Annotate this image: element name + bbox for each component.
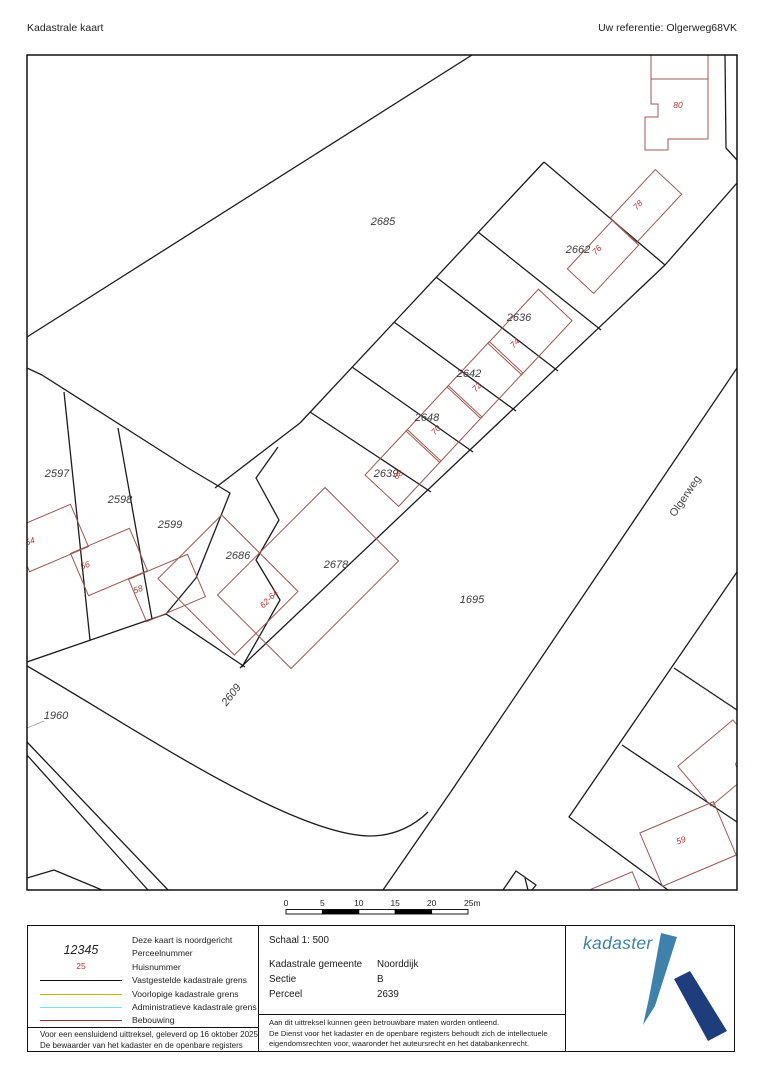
house-number-61: 61 <box>732 757 746 771</box>
building-outline-78 <box>610 170 681 243</box>
scalebar-segment <box>359 910 395 915</box>
legend-symbol-text: 12345 <box>40 943 122 957</box>
legend-line-symbol <box>40 994 122 995</box>
legend-label: Huisnummer <box>132 962 181 972</box>
detail-value: Noorddijk <box>377 959 418 970</box>
street-label-Olgerweg: Olgerweg <box>667 473 703 519</box>
scalebar: 0510152025m <box>284 898 481 914</box>
legend-separator <box>28 1027 258 1028</box>
legend-line-symbol <box>40 1020 122 1021</box>
details-section: Schaal 1: 500 Kadastrale gemeenteNoorddi… <box>258 926 565 1051</box>
parcel-boundary <box>394 322 516 411</box>
building-outline-61 <box>678 720 763 806</box>
building-outline-59 <box>640 802 736 887</box>
scale-label: Schaal 1: 500 <box>269 935 329 946</box>
parcel-label-2678: 2678 <box>323 559 349 571</box>
parcel-boundary <box>215 423 300 488</box>
scalebar-segment <box>432 910 468 915</box>
parcel-boundary <box>27 368 230 662</box>
scalebar-segment <box>322 910 358 915</box>
building-outline-74 <box>488 289 572 374</box>
kadaster-logo-text: kadaster <box>583 933 653 954</box>
parcel-boundary <box>725 55 737 160</box>
detail-label: Kadastrale gemeente <box>269 959 362 970</box>
legend-row: Vastgestelde kadastrale grens <box>28 974 258 988</box>
legend-row: Administratieve kadastrale grens <box>28 1001 258 1015</box>
scalebar-label-25m: 25m <box>464 898 481 908</box>
house-number-78: 78 <box>631 198 645 212</box>
parcel-boundary <box>27 742 168 890</box>
certification-note: Voor een eensluidend uittreksel, gelever… <box>40 1030 258 1039</box>
legend-row: 25Huisnummer <box>28 961 258 975</box>
house-number-76: 76 <box>590 243 604 257</box>
parcel-boundary <box>27 721 44 728</box>
parcel-label-2648: 2648 <box>414 412 440 424</box>
house-number-80: 80 <box>673 100 683 110</box>
building-outline-76 <box>567 221 638 294</box>
house-number-70: 70 <box>429 423 443 437</box>
house-number-72: 72 <box>470 380 484 394</box>
logo-section: kadaster <box>565 926 734 1051</box>
house-number-56: 56 <box>79 559 92 572</box>
parcel-boundary <box>27 55 472 337</box>
logo-bar-shape <box>674 971 727 1041</box>
disclaimer-line: Aan dit uittreksel kunnen geen betrouwba… <box>269 1018 499 1027</box>
legend-row: 12345Perceelnummer <box>28 947 258 961</box>
disclaimer-line: eigendomsrechten voor, waaronder het aut… <box>269 1039 529 1048</box>
legend-section: Deze kaart is noordgericht12345Perceelnu… <box>28 926 258 1051</box>
cadastral-map: 2685266226362642264826392597259825992686… <box>0 0 763 1080</box>
house-number-59: 59 <box>675 834 688 847</box>
parcel-label-2686: 2686 <box>225 550 251 562</box>
detail-value: 2639 <box>377 989 399 1000</box>
parcel-label-2597: 2597 <box>44 468 70 480</box>
parcel-label-2662: 2662 <box>565 244 590 256</box>
legend-label: Bebouwing <box>132 1015 175 1025</box>
parcel-label-1695: 1695 <box>460 594 485 606</box>
legend-label: Administratieve kadastrale grens <box>132 1002 257 1012</box>
disclaimer-line: De Dienst voor het kadaster en de openba… <box>269 1029 548 1038</box>
parcel-boundary <box>27 870 102 890</box>
scalebar-label-10: 10 <box>354 898 364 908</box>
scalebar-label-15: 15 <box>390 898 400 908</box>
detail-row: Perceel2639 <box>269 989 302 1000</box>
parcel-label-2636: 2636 <box>506 312 532 324</box>
parcel-boundary <box>166 614 245 667</box>
parcel-label-1960: 1960 <box>44 710 69 722</box>
parcel-boundary <box>240 183 737 668</box>
certification-note: De bewaarder van het kadaster en de open… <box>40 1041 243 1050</box>
house-number-58: 58 <box>132 583 145 596</box>
parcel-boundary <box>64 392 90 640</box>
map-content: 2685266226362642264826392597259825992686… <box>12 55 763 934</box>
parcel-boundary <box>383 368 737 890</box>
details-separator <box>258 1014 565 1015</box>
footer-box: Deze kaart is noordgericht12345Perceelnu… <box>27 925 735 1052</box>
legend-label: Perceelnummer <box>132 948 193 958</box>
detail-row: Kadastrale gemeenteNoorddijk <box>269 959 362 970</box>
scalebar-segment <box>286 910 322 915</box>
parcel-boundary <box>544 162 665 265</box>
scalebar-label-0: 0 <box>284 898 289 908</box>
parcel-label-2598: 2598 <box>107 494 133 506</box>
house-number-74: 74 <box>508 336 522 350</box>
scalebar-segment <box>395 910 431 915</box>
parcel-boundary <box>352 367 473 452</box>
detail-value: B <box>377 974 384 985</box>
parcel-label-2599: 2599 <box>157 519 182 531</box>
detail-label: Perceel <box>269 989 302 1000</box>
parcel-boundary <box>569 572 737 890</box>
parcel-boundary <box>300 162 544 423</box>
parcel-label-2609: 2609 <box>219 682 244 709</box>
legend-line-symbol <box>40 980 122 981</box>
parcel-boundary <box>622 745 737 822</box>
house-number-54: 54 <box>24 535 37 548</box>
building-outline-62-64 <box>217 487 398 668</box>
scalebar-label-20: 20 <box>427 898 437 908</box>
legend-symbol-text: 25 <box>40 961 122 971</box>
parcel-boundary <box>674 668 737 710</box>
scalebar-label-5: 5 <box>320 898 325 908</box>
parcel-boundary <box>27 755 148 890</box>
building-outline-72 <box>447 342 523 419</box>
detail-row: SectieB <box>269 974 296 985</box>
parcel-label-2685: 2685 <box>370 216 396 228</box>
legend-label: Vastgestelde kadastrale grens <box>132 975 247 985</box>
legend-label: Deze kaart is noordgericht <box>132 935 232 945</box>
legend-row: Voorlopige kadastrale grens <box>28 988 258 1002</box>
parcel-label-2642: 2642 <box>456 368 481 380</box>
legend-label: Voorlopige kadastrale grens <box>132 989 239 999</box>
parcel-boundary <box>503 871 536 890</box>
legend-line-symbol <box>40 1007 122 1008</box>
detail-label: Sectie <box>269 974 296 985</box>
